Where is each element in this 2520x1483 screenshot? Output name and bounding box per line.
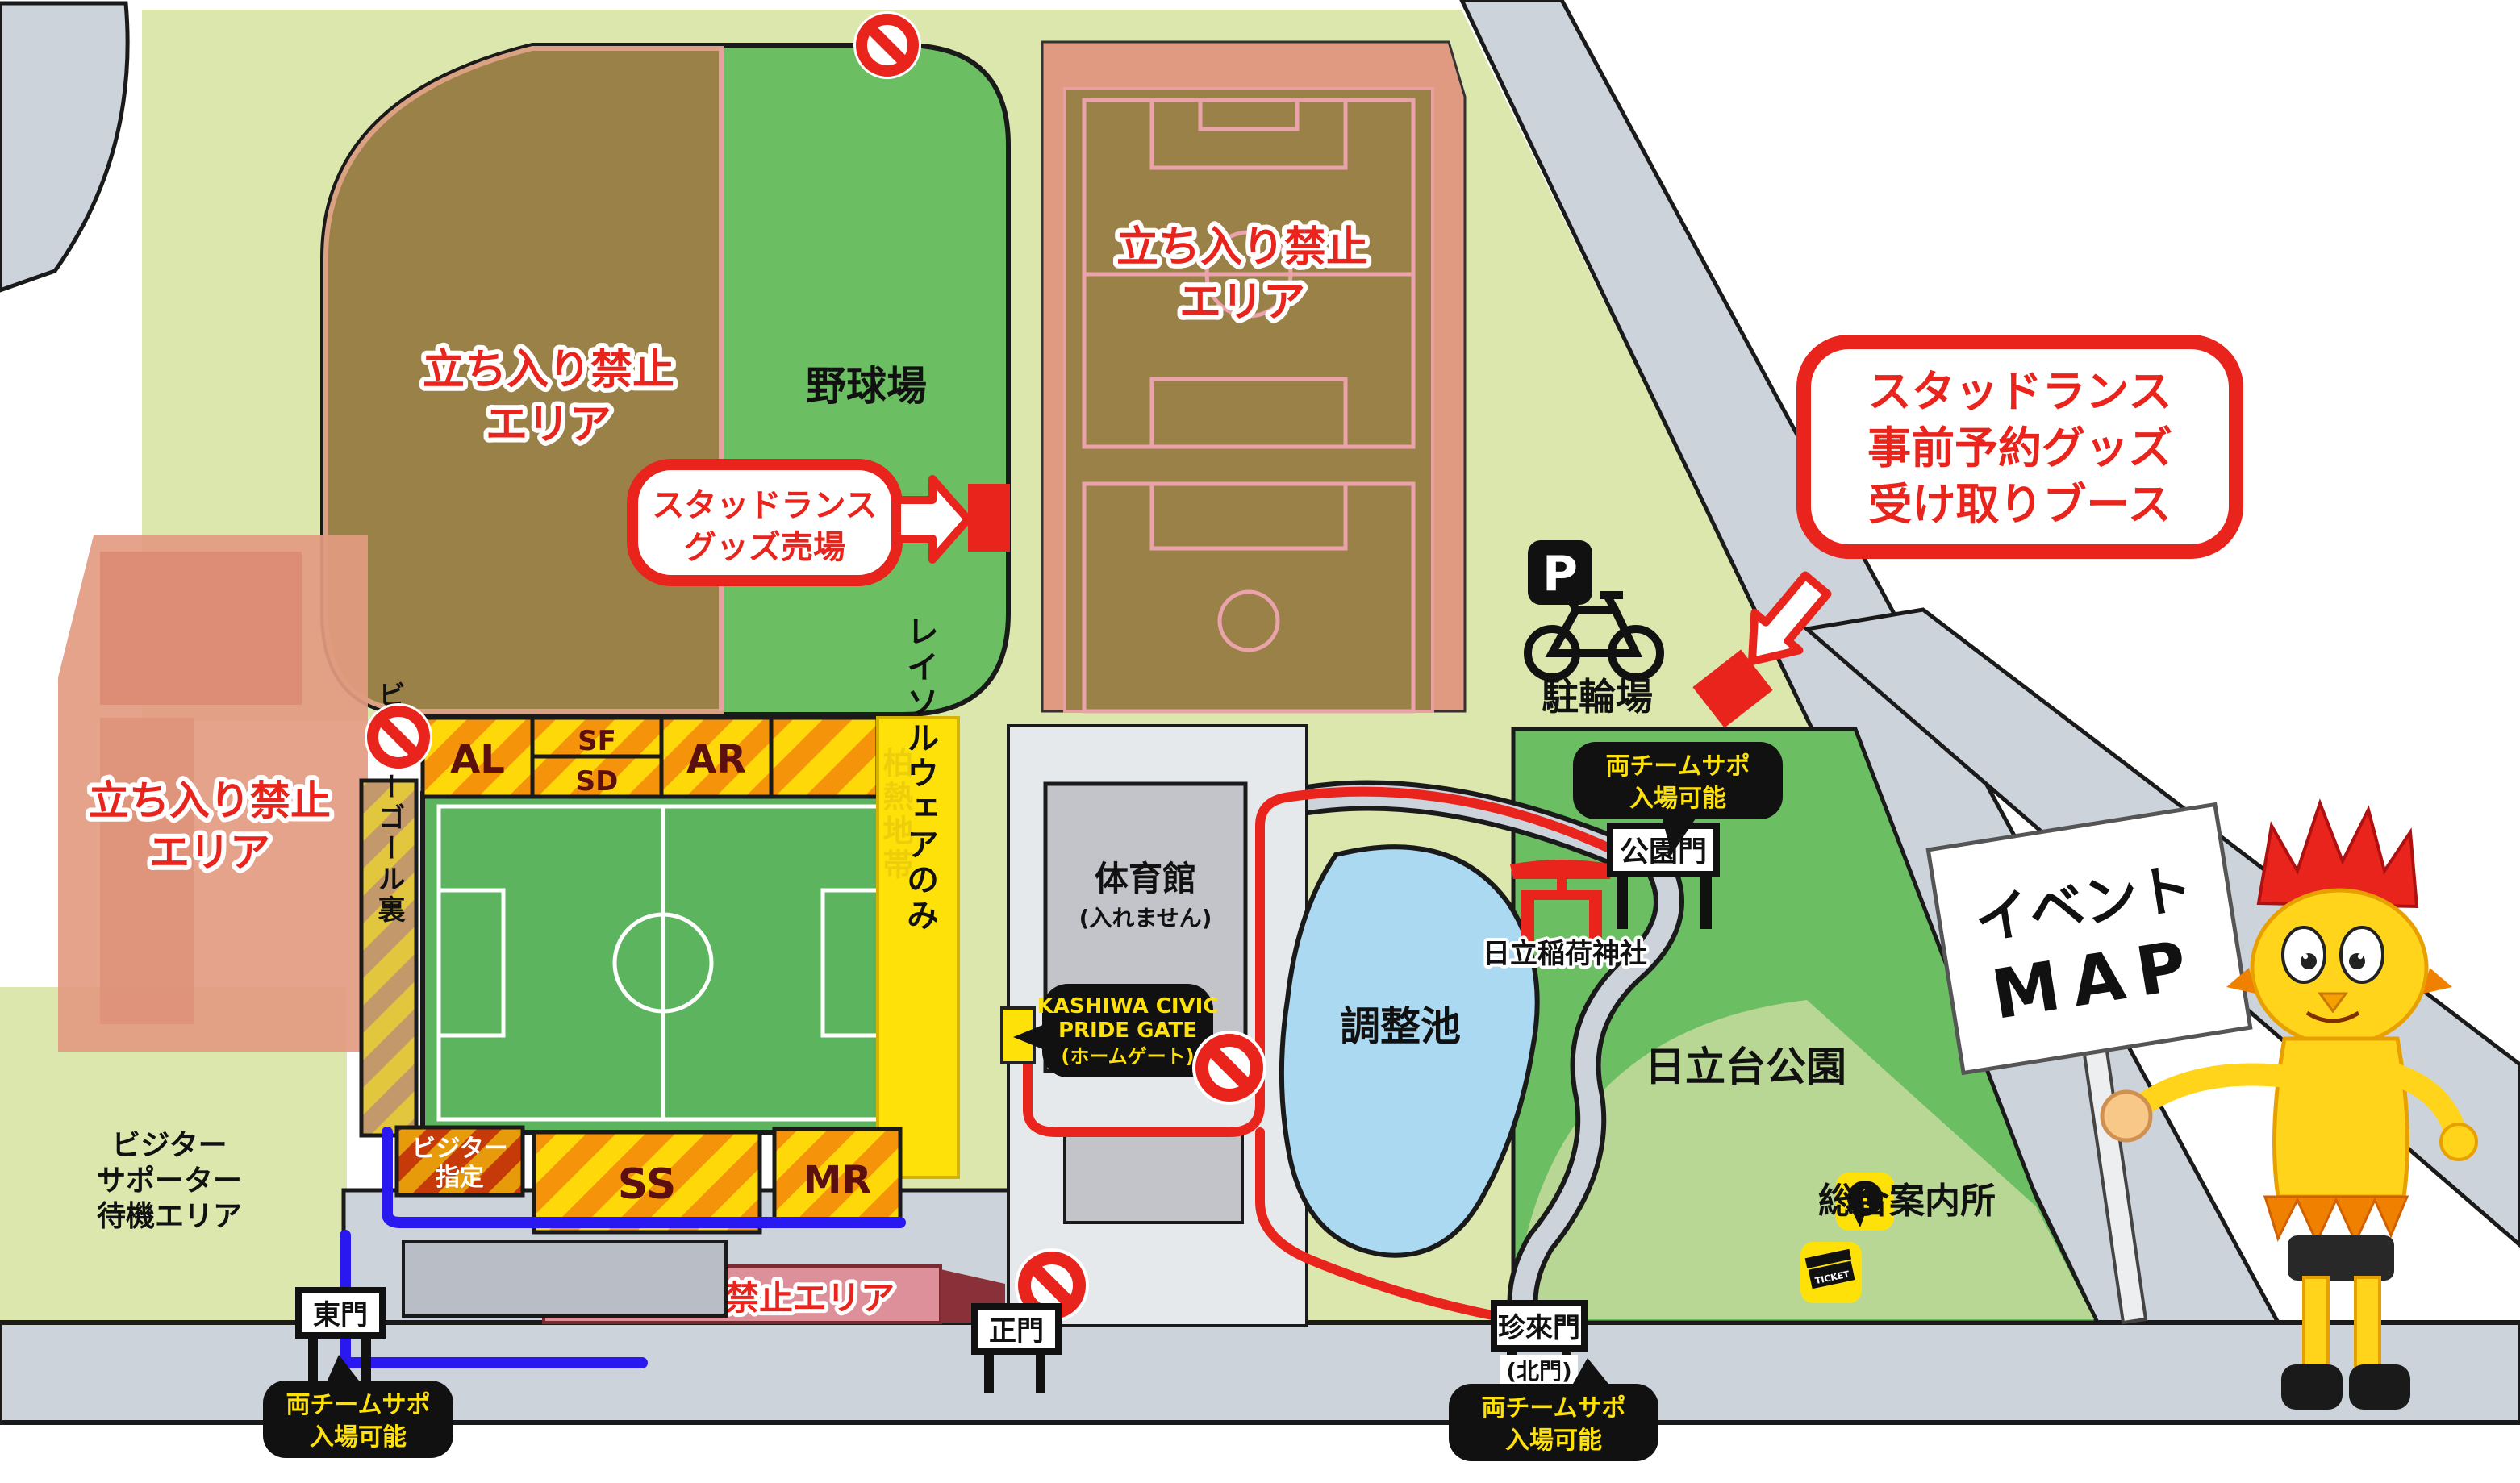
no-entry-training-line1: 立ち入り禁止 bbox=[1116, 223, 1368, 272]
visitor-waiting-line1: ビジター bbox=[111, 1129, 227, 1162]
goods-shop-line2: グッズ売場 bbox=[684, 529, 845, 566]
visitor-waiting-line3: 待機エリア bbox=[97, 1200, 242, 1233]
both-teams-east-line1: 両チームサポ bbox=[286, 1391, 430, 1419]
pride-gate-line3: (ホームゲート) bbox=[1061, 1045, 1194, 1068]
stand-visitor-reserved-line2: 指定 bbox=[436, 1164, 484, 1192]
pride-gate-line2: PRIDE GATE bbox=[1058, 1019, 1197, 1043]
event-map-sign: イベント MAP bbox=[1928, 805, 2250, 1073]
park-gate-label: 公園門 bbox=[1620, 835, 1707, 869]
no-entry-baseball-line2: エリア bbox=[486, 401, 611, 449]
stand-visitor-reserved-line1: ビジター bbox=[411, 1135, 507, 1163]
mascot-boot-left bbox=[2281, 1364, 2343, 1410]
stand-sd-label: SD bbox=[576, 765, 619, 798]
visitor-waiting-line2: サポーター bbox=[97, 1164, 242, 1198]
baseball-field-label: 野球場 bbox=[806, 363, 927, 410]
no-entry-icon-gate bbox=[1192, 1031, 1266, 1105]
event-map: 立ち入り禁止 エリア 野球場 立ち入り禁止 エリア 立ち入り禁止 エリア bbox=[0, 0, 2520, 1483]
stand-sf-label: SF bbox=[578, 725, 616, 757]
preorder-line1: スタッドランス bbox=[1868, 366, 2172, 417]
no-entry-baseball-line1: 立ち入り禁止 bbox=[423, 346, 674, 394]
east-gate-label: 東門 bbox=[313, 1299, 368, 1331]
park-label: 日立台公園 bbox=[1645, 1044, 1846, 1090]
map-canvas: 立ち入り禁止 エリア 野球場 立ち入り禁止 エリア 立ち入り禁止 エリア bbox=[0, 0, 2520, 1483]
stand-ar-label: AR bbox=[686, 737, 746, 782]
both-teams-chinrai-line2: 入場可能 bbox=[1505, 1427, 1602, 1455]
no-entry-icon-west bbox=[365, 703, 432, 771]
preorder-line2: 事前予約グッズ bbox=[1867, 423, 2172, 473]
mascot-shorts bbox=[2288, 1235, 2394, 1281]
preorder-line3: 受け取りブース bbox=[1868, 479, 2171, 530]
chinrai-gate-alias-label: (北門) bbox=[1506, 1358, 1572, 1385]
stand-corner-ne bbox=[771, 718, 878, 797]
mascot-hand bbox=[2102, 1092, 2151, 1140]
chinrai-gate-label: 珍來門 bbox=[1498, 1312, 1580, 1344]
stand-reysol-wear-only-label: レイソルウェアのみ bbox=[901, 614, 938, 934]
parking-icon-letter: P bbox=[1542, 546, 1578, 602]
mascot-body bbox=[2275, 1039, 2408, 1197]
stand-al-label: AL bbox=[450, 737, 505, 782]
mascot-boot-right bbox=[2349, 1364, 2410, 1410]
no-entry-left-line2: エリア bbox=[149, 829, 270, 876]
both-teams-park-line2: 入場可能 bbox=[1629, 785, 1726, 813]
shrine-label: 日立稲荷神社 bbox=[1483, 938, 1647, 970]
gymnasium-label-line1: 体育館 bbox=[1095, 859, 1196, 898]
gymnasium-label-line2: (入れません) bbox=[1079, 905, 1212, 931]
main-gate-label: 正門 bbox=[989, 1315, 1044, 1348]
stand-mr-label: MR bbox=[803, 1158, 872, 1203]
pond-label: 調整池 bbox=[1340, 1003, 1461, 1050]
no-entry-left-line1: 立ち入り禁止 bbox=[89, 777, 331, 824]
both-teams-park-line1: 両チームサポ bbox=[1605, 752, 1750, 781]
goods-shop-marker bbox=[968, 484, 1010, 552]
bicycle-parking-label: 駐輪場 bbox=[1542, 675, 1653, 719]
pride-gate-line1: KASHIWA CIVIC bbox=[1037, 994, 1219, 1019]
no-entry-training-line2: エリア bbox=[1179, 278, 1305, 327]
no-entry-icon-top bbox=[853, 11, 921, 79]
goods-shop-line1: スタッドランス bbox=[652, 487, 877, 524]
training-pitch bbox=[1042, 42, 1465, 711]
info-center-label: 総合案内所 bbox=[1818, 1181, 1996, 1222]
both-teams-chinrai-line1: 両チームサポ bbox=[1481, 1394, 1625, 1423]
stand-ss-label: SS bbox=[618, 1160, 677, 1209]
ticket-icon: TICKET bbox=[1800, 1242, 1862, 1303]
both-teams-east-line2: 入場可能 bbox=[310, 1423, 407, 1452]
